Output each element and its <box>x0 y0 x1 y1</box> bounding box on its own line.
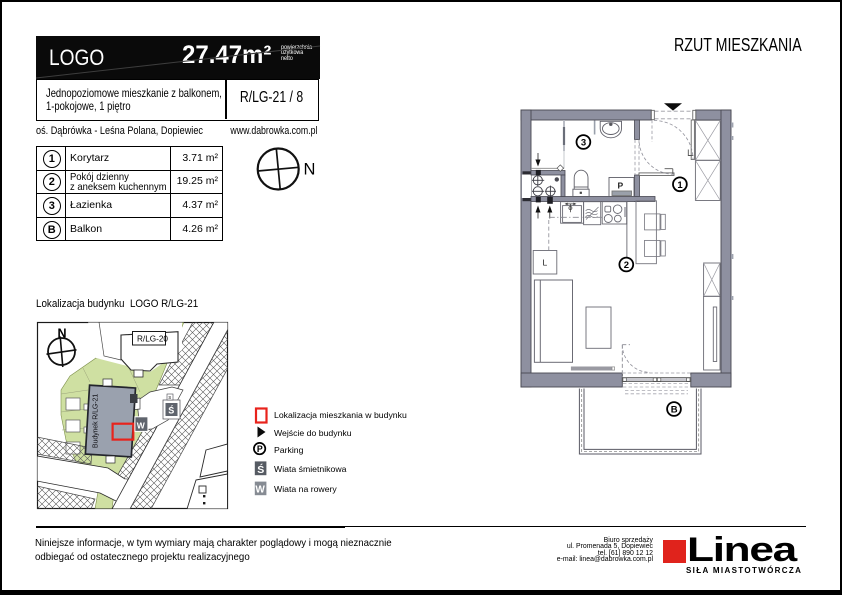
svg-text:Budynek R/LG-21: Budynek R/LG-21 <box>91 394 100 448</box>
svg-text:3: 3 <box>581 138 586 149</box>
svg-text:N: N <box>58 327 67 341</box>
svg-text:W: W <box>255 485 265 496</box>
svg-text:W: W <box>137 420 146 430</box>
svg-text:N: N <box>304 161 316 179</box>
svg-text:P: P <box>257 444 263 454</box>
svg-text:s: s <box>168 395 171 401</box>
svg-text:2: 2 <box>624 260 629 271</box>
svg-text:L: L <box>543 258 548 268</box>
svg-text:P: P <box>618 181 624 191</box>
svg-text:Ś: Ś <box>168 405 174 416</box>
svg-text:B: B <box>671 405 678 416</box>
svg-text:Ś: Ś <box>257 463 264 476</box>
svg-text:R/LG-20: R/LG-20 <box>137 335 168 344</box>
svg-text:1: 1 <box>677 180 683 191</box>
